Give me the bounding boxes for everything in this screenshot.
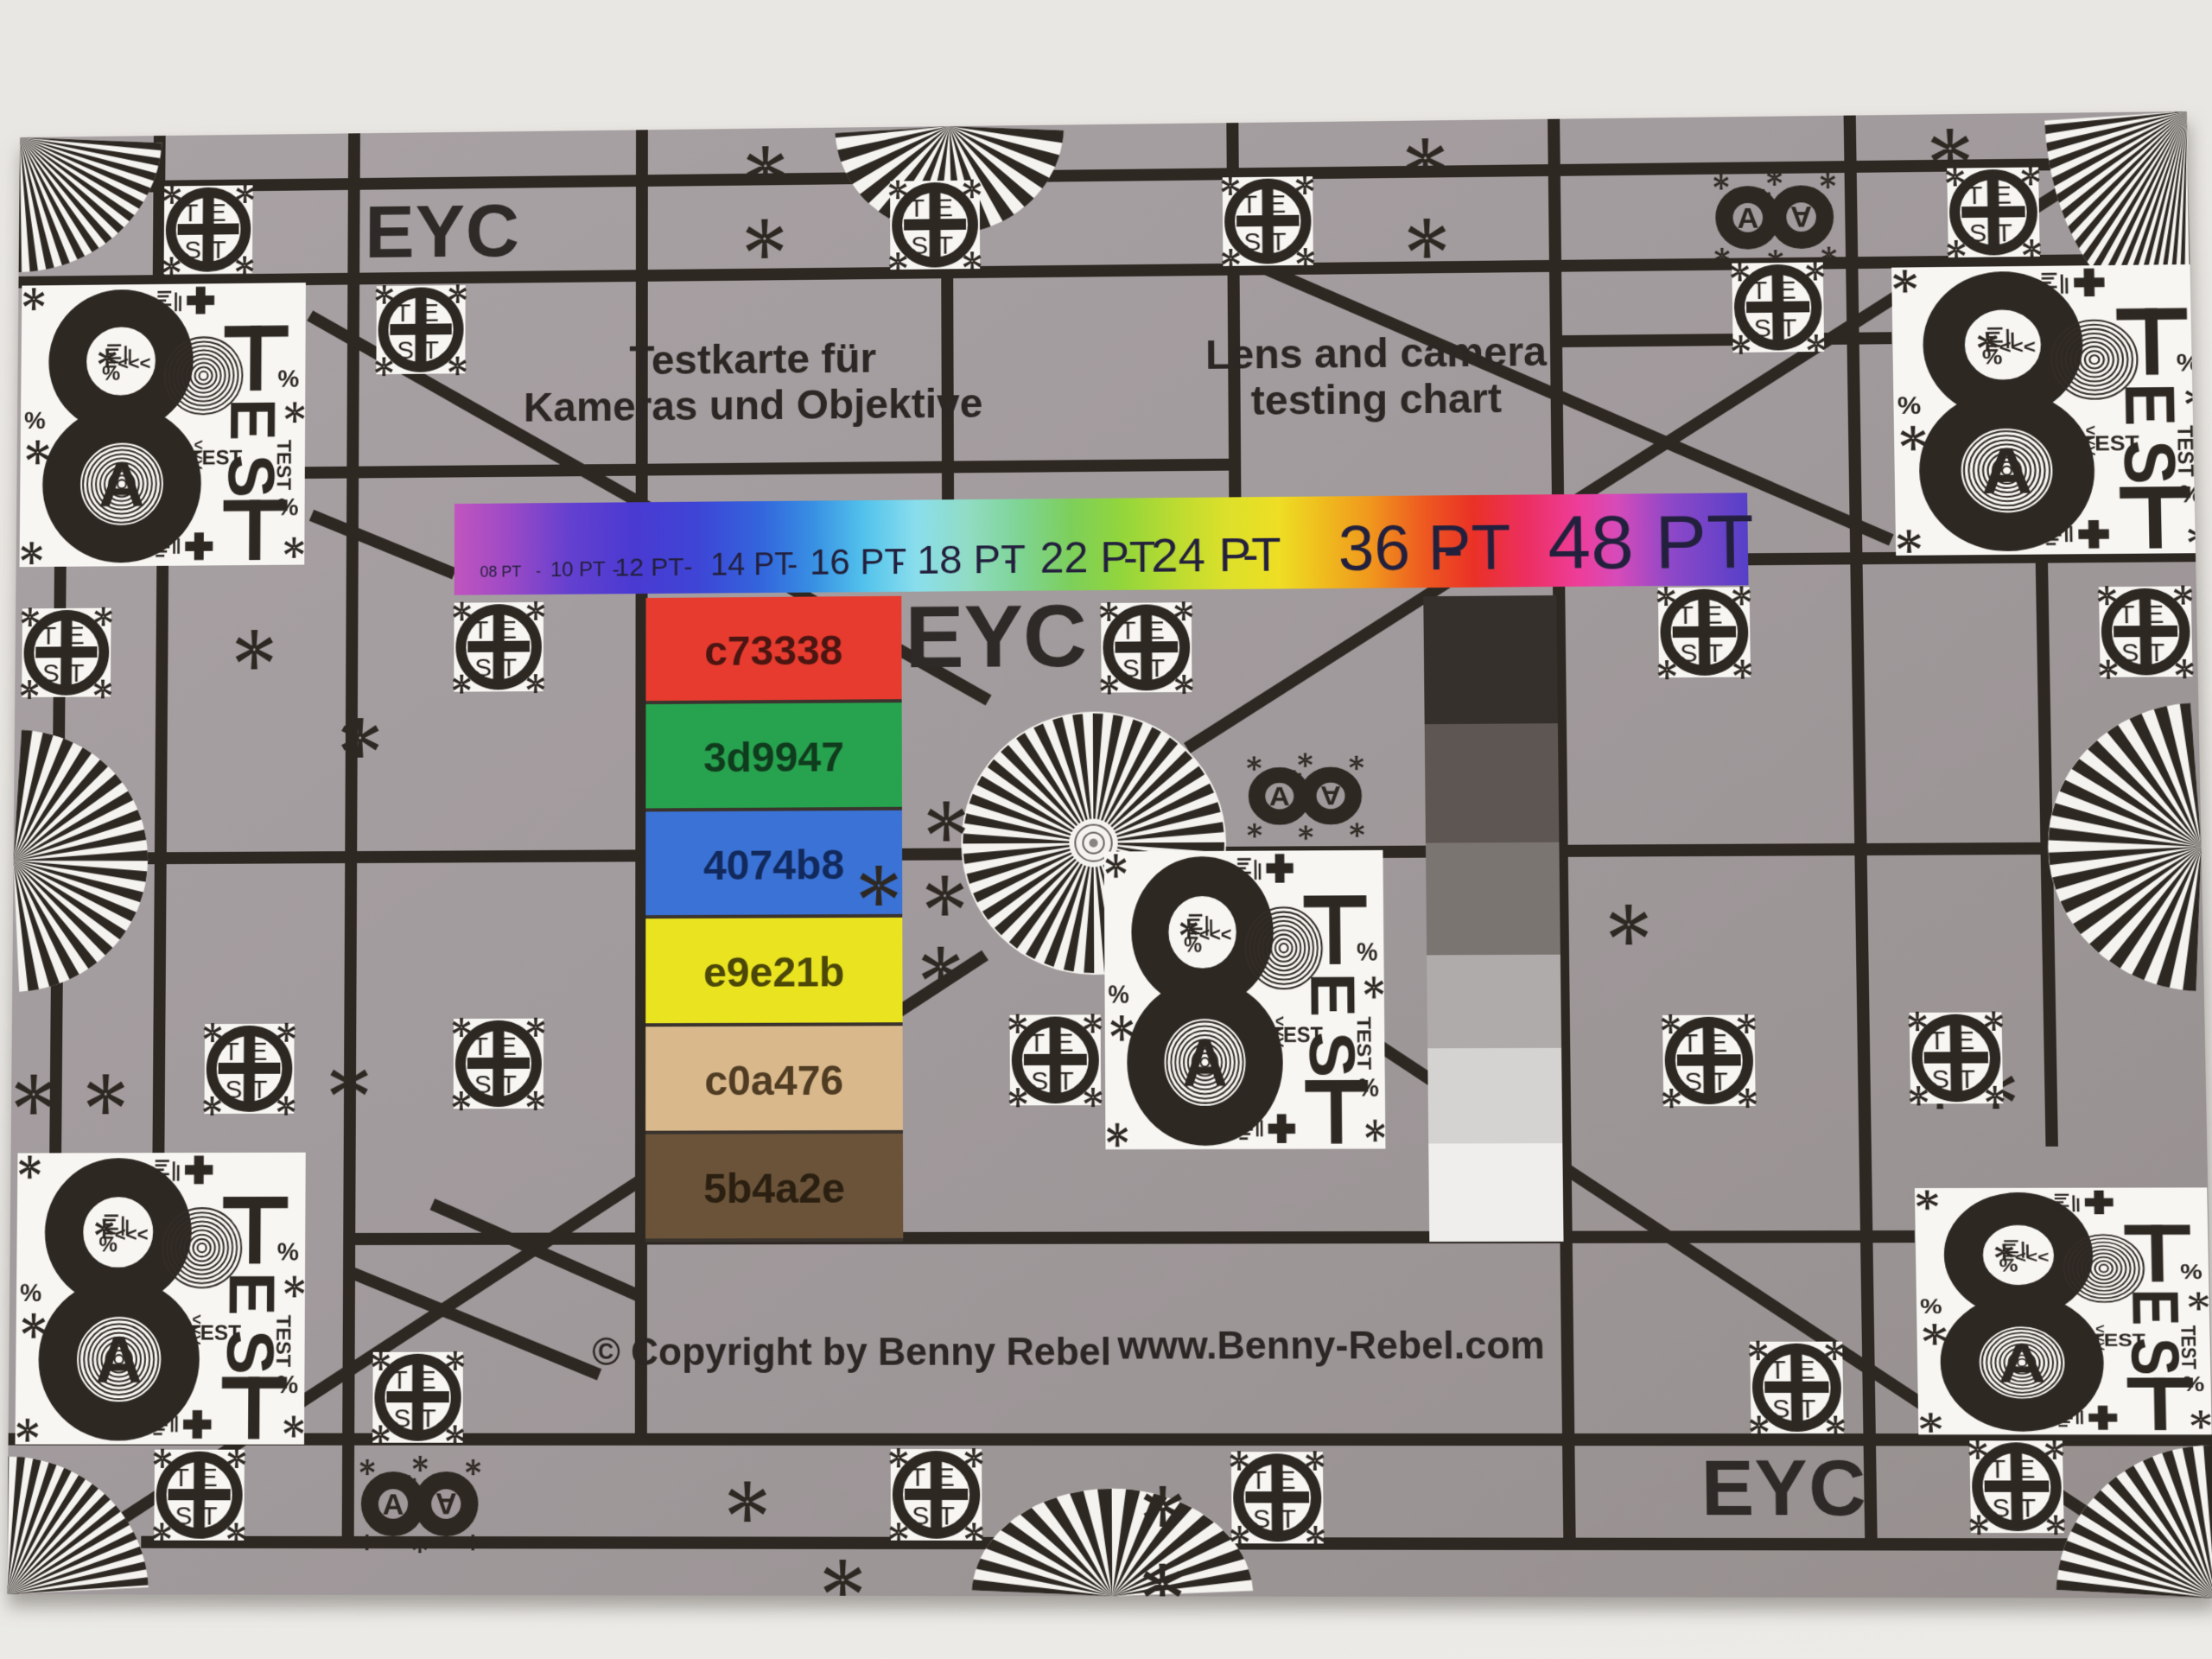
svg-text:EYC: EYC xyxy=(365,189,520,273)
svg-text:Lens and camera: Lens and camera xyxy=(1205,328,1548,378)
svg-text:-: - xyxy=(1123,534,1138,582)
svg-text:-: - xyxy=(787,547,798,582)
svg-text:Testkarte für: Testkarte für xyxy=(629,335,876,383)
svg-text:48 PT: 48 PT xyxy=(1548,499,1755,585)
svg-text:4074b8: 4074b8 xyxy=(703,842,844,888)
svg-text:© Copyright by Benny Rebel: © Copyright by Benny Rebel xyxy=(592,1331,1111,1374)
svg-text:Kameras und Objektive: Kameras und Objektive xyxy=(524,380,983,430)
svg-text:5b4a2e: 5b4a2e xyxy=(703,1165,845,1211)
svg-text:36 PT: 36 PT xyxy=(1338,512,1510,584)
svg-text:www.Benny-Rebel.com: www.Benny-Rebel.com xyxy=(1116,1325,1545,1368)
svg-text:-: - xyxy=(1003,537,1017,582)
svg-text:14 PT: 14 PT xyxy=(710,547,793,582)
svg-text:-: - xyxy=(536,563,541,580)
svg-text:e9e21b: e9e21b xyxy=(703,949,844,995)
svg-text:-: - xyxy=(1443,515,1464,582)
svg-text:3d9947: 3d9947 xyxy=(703,734,844,780)
svg-text:08 PT: 08 PT xyxy=(480,563,522,581)
svg-text:testing chart: testing chart xyxy=(1251,375,1503,423)
svg-text:c73338: c73338 xyxy=(704,627,842,674)
svg-text:-: - xyxy=(683,553,692,582)
svg-text:12 PT: 12 PT xyxy=(615,554,684,582)
svg-text:EYC: EYC xyxy=(1700,1444,1867,1532)
svg-text:EYC: EYC xyxy=(905,588,1087,687)
svg-text:c0a476: c0a476 xyxy=(704,1058,843,1104)
svg-text:24 PT: 24 PT xyxy=(1151,527,1281,582)
svg-text:22 PT: 22 PT xyxy=(1039,534,1155,582)
svg-text:-: - xyxy=(893,541,905,582)
svg-text:10 PT: 10 PT xyxy=(550,557,606,581)
svg-text:-: - xyxy=(1243,528,1259,582)
